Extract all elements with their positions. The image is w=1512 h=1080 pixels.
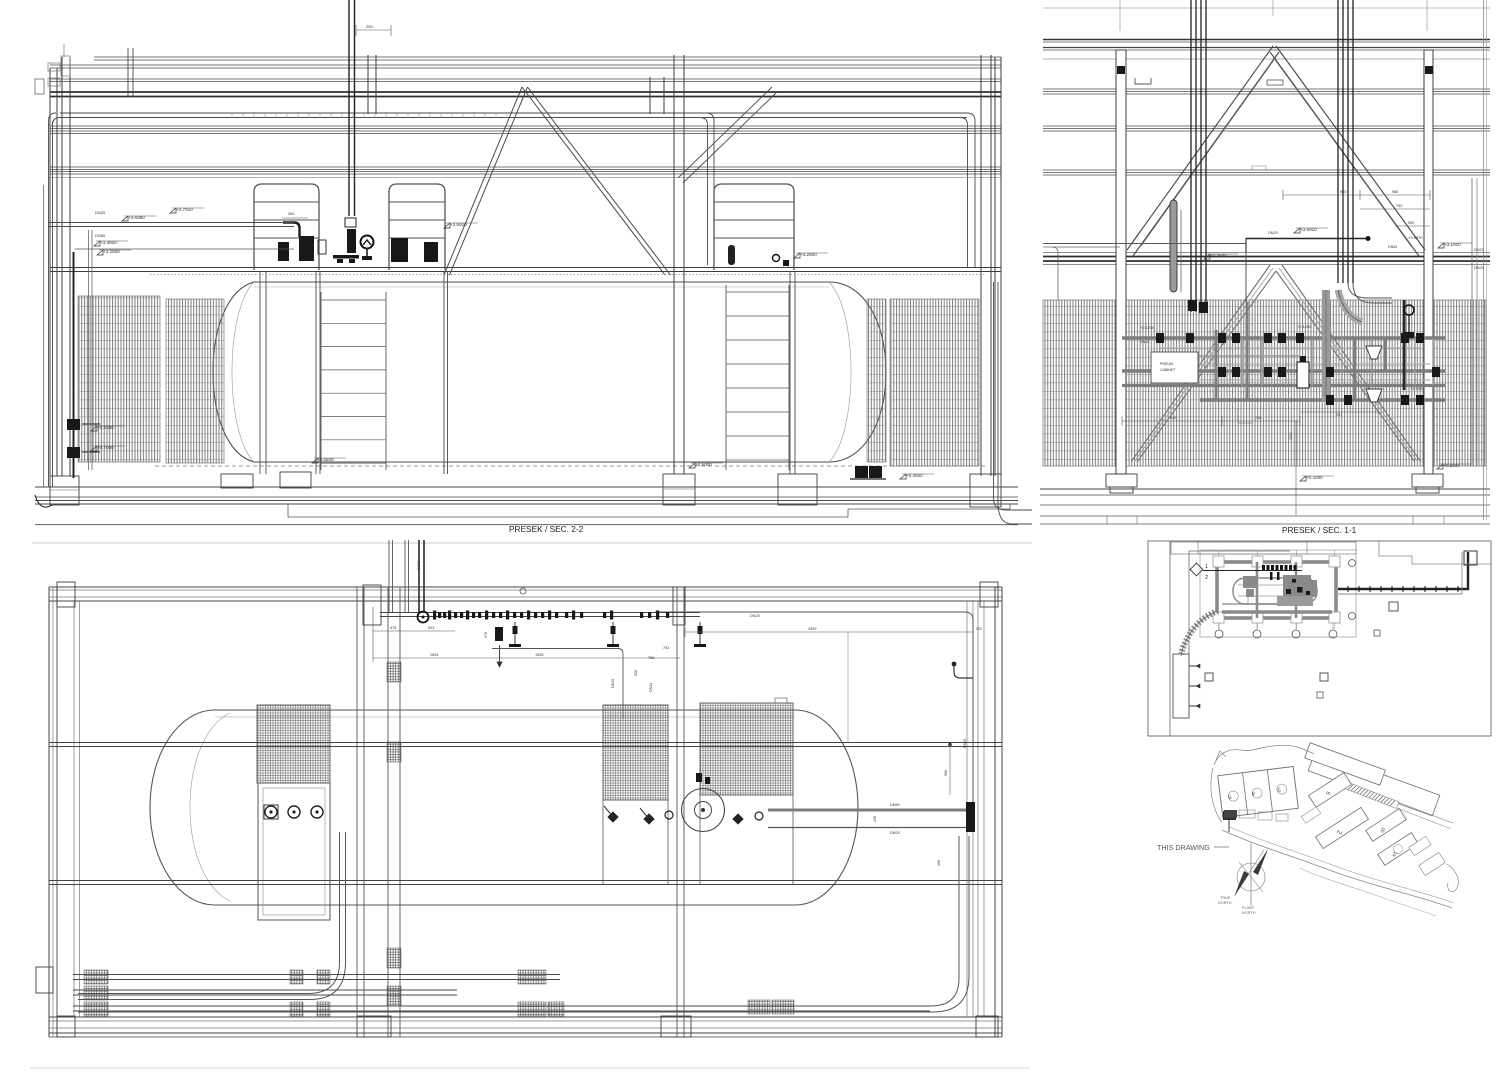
svg-text:PRESEK / SEC. 1-1: PRESEK / SEC. 1-1: [1282, 525, 1357, 535]
svg-text:1500: 1500: [1289, 432, 1293, 440]
svg-text:748: 748: [1255, 416, 1261, 420]
svg-text:DN50: DN50: [95, 233, 106, 238]
svg-text:475: 475: [390, 626, 396, 630]
svg-text:1: 1: [1205, 564, 1208, 570]
svg-text:DN25: DN25: [750, 614, 760, 618]
svg-text:2: 2: [1205, 575, 1208, 581]
svg-text:DN25: DN25: [1268, 231, 1278, 235]
svg-text:+1.5300: +1.5300: [1410, 386, 1425, 391]
svg-text:DN50: DN50: [1388, 245, 1397, 249]
svg-text:220: 220: [976, 627, 982, 631]
svg-text:NORTH: NORTH: [1242, 911, 1256, 915]
svg-text:DN25: DN25: [890, 831, 900, 835]
svg-text:4309: 4309: [808, 627, 816, 631]
svg-text:1596: 1596: [535, 653, 543, 657]
svg-text:757: 757: [1336, 413, 1342, 417]
svg-text:DN50: DN50: [890, 803, 900, 807]
svg-text:753: 753: [663, 646, 669, 650]
svg-text:750: 750: [1396, 204, 1402, 208]
svg-text:DN10: DN10: [1140, 340, 1149, 344]
svg-text:1654: 1654: [430, 653, 438, 657]
svg-text:300: 300: [288, 212, 294, 216]
svg-text:THIS DRAWING: THIS DRAWING: [1157, 843, 1210, 852]
svg-text:DN25: DN25: [611, 679, 615, 688]
svg-text:756: 756: [648, 656, 654, 660]
svg-text:TRUE: TRUE: [1220, 896, 1231, 900]
svg-text:NORTH: NORTH: [1218, 901, 1232, 905]
svg-text:PRESEK / SEC. 2-2: PRESEK / SEC. 2-2: [509, 524, 584, 534]
svg-text:DN25: DN25: [963, 739, 967, 748]
svg-text:980: 980: [1340, 190, 1346, 194]
svg-text:900: 900: [944, 770, 948, 776]
svg-text:+2.1200: +2.1200: [1297, 324, 1312, 329]
svg-text:+3.6870: +3.6870: [1408, 235, 1423, 240]
svg-text:+2.1200: +2.1200: [1140, 325, 1155, 330]
svg-text:945: 945: [1170, 416, 1176, 420]
svg-text:PNEUM.: PNEUM.: [1160, 362, 1174, 366]
svg-text:985: 985: [1392, 190, 1398, 194]
svg-text:230: 230: [873, 816, 877, 822]
svg-text:160: 160: [937, 860, 941, 866]
svg-text:DN32: DN32: [649, 683, 653, 692]
svg-text:DN32: DN32: [417, 561, 421, 570]
svg-text:DN25: DN25: [1474, 248, 1484, 252]
svg-text:550: 550: [1408, 221, 1414, 225]
svg-text:516: 516: [634, 670, 638, 676]
svg-text:DN25: DN25: [1474, 266, 1484, 270]
svg-text:250: 250: [366, 24, 373, 29]
svg-text:323: 323: [428, 626, 434, 630]
svg-text:DN25: DN25: [95, 210, 106, 215]
svg-text:376: 376: [484, 632, 488, 638]
svg-text:PLANT: PLANT: [1242, 906, 1255, 910]
svg-text:CABINET: CABINET: [1160, 368, 1176, 372]
